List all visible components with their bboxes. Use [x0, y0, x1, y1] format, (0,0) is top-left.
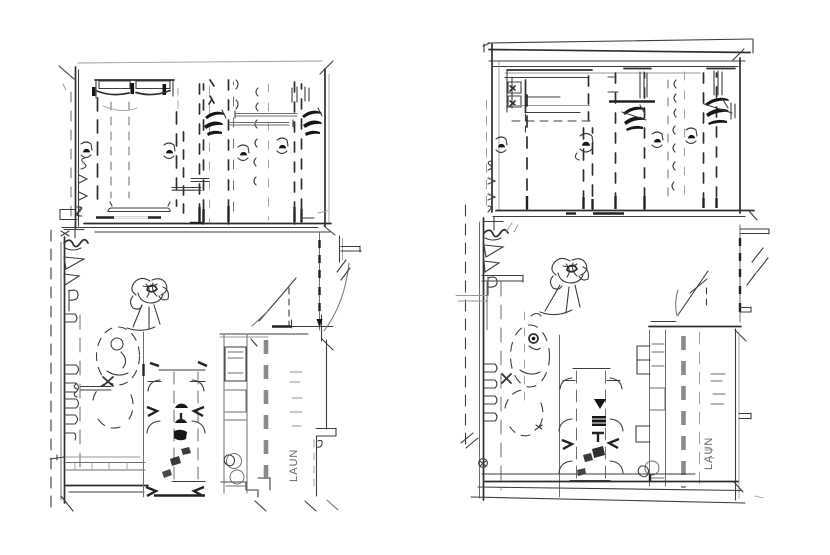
- svg-text:LAUN: LAUN: [703, 437, 715, 470]
- svg-text:LAUN: LAUN: [288, 449, 300, 482]
